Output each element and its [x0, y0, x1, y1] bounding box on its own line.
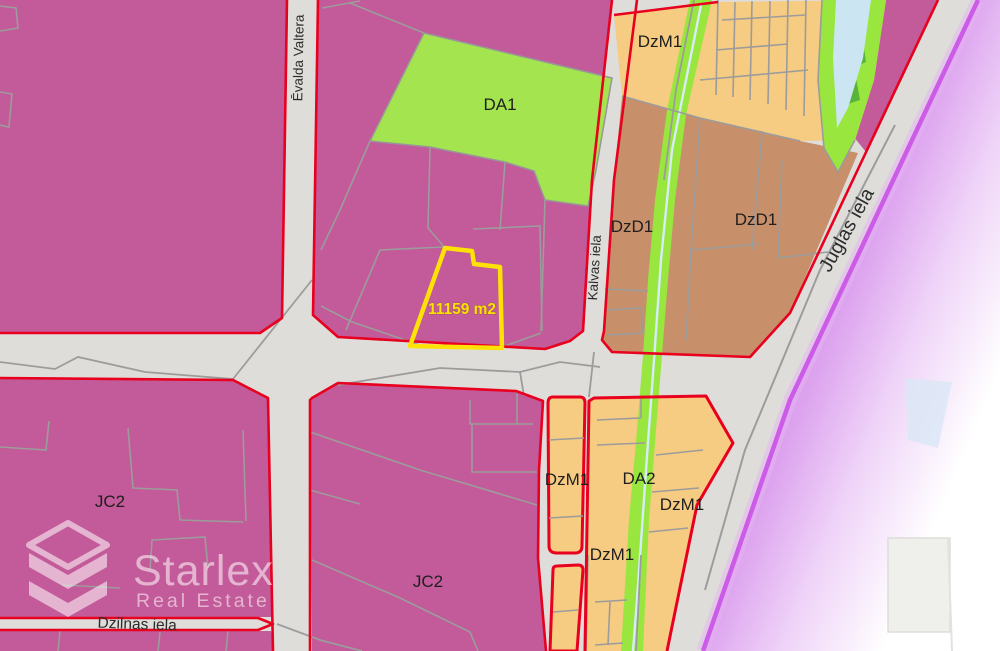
zone-label-da2: DA2 [622, 469, 655, 488]
zone-jc2-southwest [0, 631, 274, 651]
building-footprint [888, 538, 950, 632]
zone-label-dzd1-west: DzD1 [611, 217, 654, 236]
zone-label-dzm1-southeast: DzM1 [660, 495, 704, 514]
zone-label-jc2-central: JC2 [413, 572, 443, 591]
parcel-area-label: 11159 m2 [428, 301, 496, 318]
zone-label-dzd1-east: DzD1 [735, 210, 778, 229]
watermark-tagline: Real Estate [136, 590, 270, 612]
zone-jc2-northwest [0, 0, 287, 333]
watermark-brand: Starlex [133, 547, 274, 595]
zone-label-dzm1-north: DzM1 [638, 32, 682, 51]
street-label-evalda-valtera: Ēvalda Valtera [290, 14, 307, 102]
street-label-dzilnas-iela: Dzilnas iela [97, 615, 177, 635]
zone-label-jc2-west: JC2 [95, 492, 125, 511]
zone-label-dzm1-strip: DzM1 [545, 470, 589, 489]
zone-label-da1: DA1 [483, 95, 516, 114]
zoning-map[interactable]: 11159 m2 DA1 DzM1 DzD1 DzD1 JC2 JC2 DzM1… [0, 0, 1000, 651]
zone-label-dzm1-south: DzM1 [590, 545, 634, 564]
zone-dzm1-strip-lower [550, 565, 583, 651]
map-canvas: 11159 m2 DA1 DzM1 DzD1 DzD1 JC2 JC2 DzM1… [0, 0, 1000, 651]
